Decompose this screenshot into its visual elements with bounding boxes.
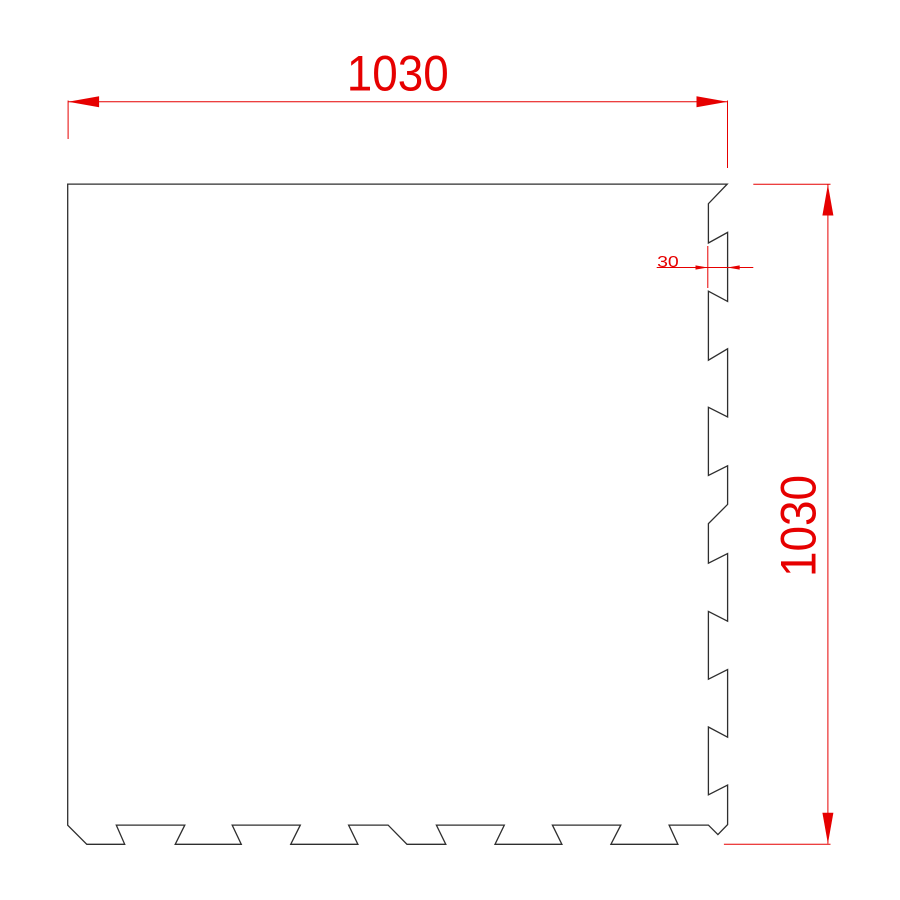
svg-text:30: 30	[657, 254, 679, 271]
svg-text:1030: 1030	[347, 44, 449, 101]
svg-text:1030: 1030	[770, 475, 827, 577]
